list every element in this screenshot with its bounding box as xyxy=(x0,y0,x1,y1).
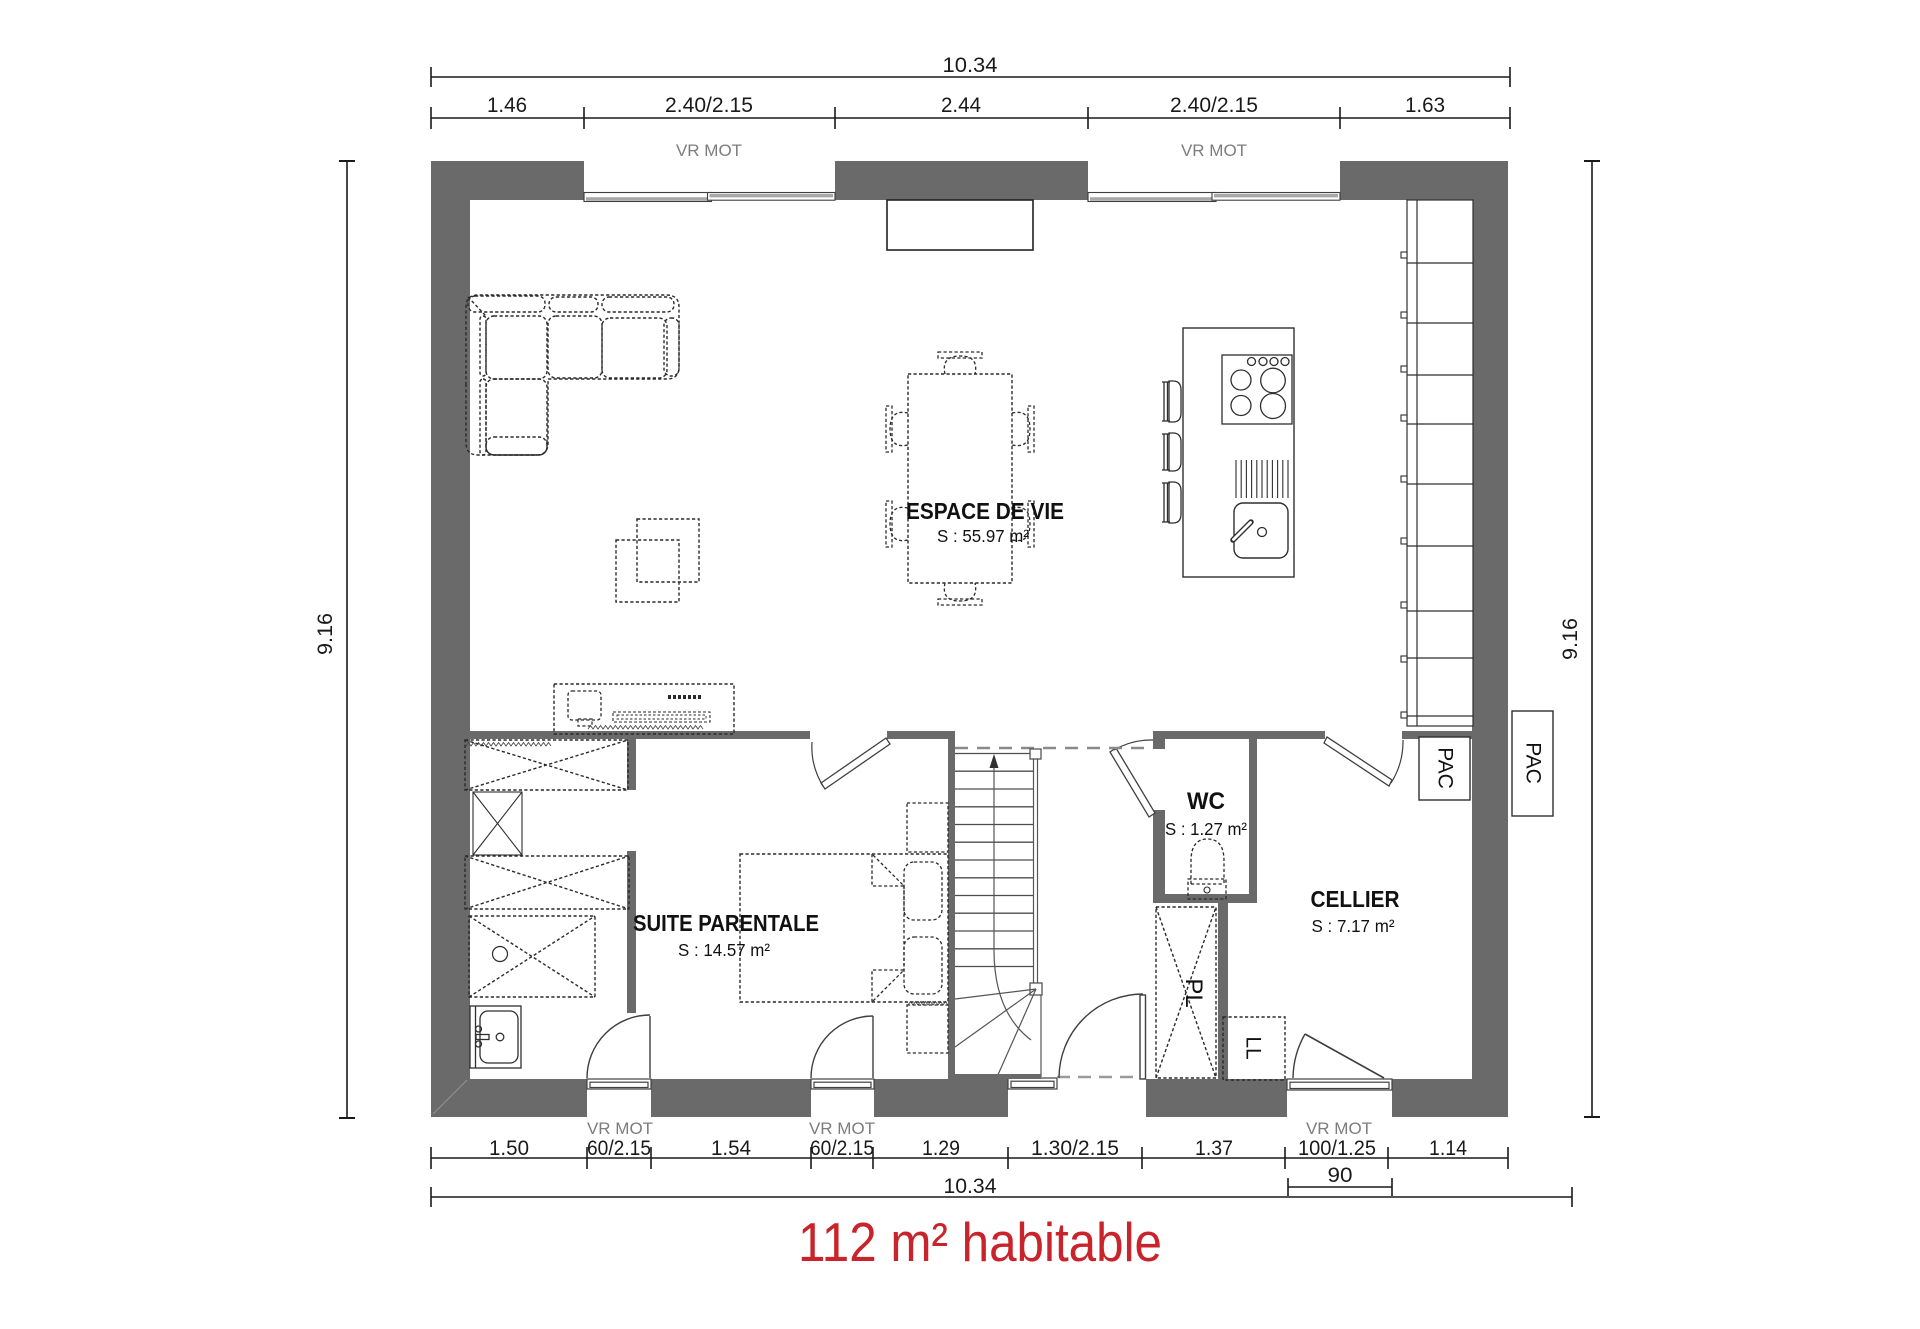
svg-text:1.30/2.15: 1.30/2.15 xyxy=(1031,1137,1119,1160)
svg-text:60/2.15: 60/2.15 xyxy=(587,1137,651,1160)
svg-text:PAC: PAC xyxy=(1433,747,1456,789)
svg-text:10.34: 10.34 xyxy=(943,54,998,77)
svg-text:S : 55.97 m²: S : 55.97 m² xyxy=(937,526,1029,546)
svg-text:9.16: 9.16 xyxy=(314,613,337,655)
svg-text:10.34: 10.34 xyxy=(944,1175,997,1198)
svg-text:S : 1.27 m²: S : 1.27 m² xyxy=(1165,819,1247,839)
svg-text:LL: LL xyxy=(1241,1036,1264,1059)
svg-text:S : 7.17 m²: S : 7.17 m² xyxy=(1312,916,1395,936)
svg-text:2.40/2.15: 2.40/2.15 xyxy=(665,94,753,117)
svg-text:1.50: 1.50 xyxy=(489,1137,529,1160)
svg-text:1.54: 1.54 xyxy=(711,1137,751,1160)
svg-text:VR MOT: VR MOT xyxy=(676,141,742,160)
svg-text:100/1.25: 100/1.25 xyxy=(1298,1137,1376,1160)
svg-text:PAC: PAC xyxy=(1521,742,1544,784)
svg-text:1.46: 1.46 xyxy=(487,94,527,117)
svg-text:9.16: 9.16 xyxy=(1559,618,1582,660)
svg-text:1.37: 1.37 xyxy=(1195,1137,1233,1160)
svg-text:90: 90 xyxy=(1328,1164,1353,1187)
svg-text:SUITE PARENTALE: SUITE PARENTALE xyxy=(633,910,819,936)
svg-text:112 m² habitable: 112 m² habitable xyxy=(798,1211,1162,1273)
svg-text:1.14: 1.14 xyxy=(1429,1137,1467,1160)
svg-text:S : 14.57 m²: S : 14.57 m² xyxy=(678,940,770,960)
svg-text:WC: WC xyxy=(1187,788,1225,815)
svg-text:PL: PL xyxy=(1180,978,1207,1007)
svg-text:ESPACE DE VIE: ESPACE DE VIE xyxy=(906,498,1064,524)
svg-text:1.63: 1.63 xyxy=(1405,94,1445,117)
svg-text:1.29: 1.29 xyxy=(922,1137,960,1160)
svg-text:60/2.15: 60/2.15 xyxy=(810,1137,874,1160)
svg-text:VR MOT: VR MOT xyxy=(1181,141,1247,160)
svg-text:VR MOT: VR MOT xyxy=(1306,1119,1372,1138)
svg-text:2.40/2.15: 2.40/2.15 xyxy=(1170,94,1258,117)
svg-text:VR MOT: VR MOT xyxy=(809,1119,875,1138)
svg-text:CELLIER: CELLIER xyxy=(1311,886,1400,912)
svg-text:2.44: 2.44 xyxy=(941,94,981,117)
svg-text:VR MOT: VR MOT xyxy=(587,1119,653,1138)
